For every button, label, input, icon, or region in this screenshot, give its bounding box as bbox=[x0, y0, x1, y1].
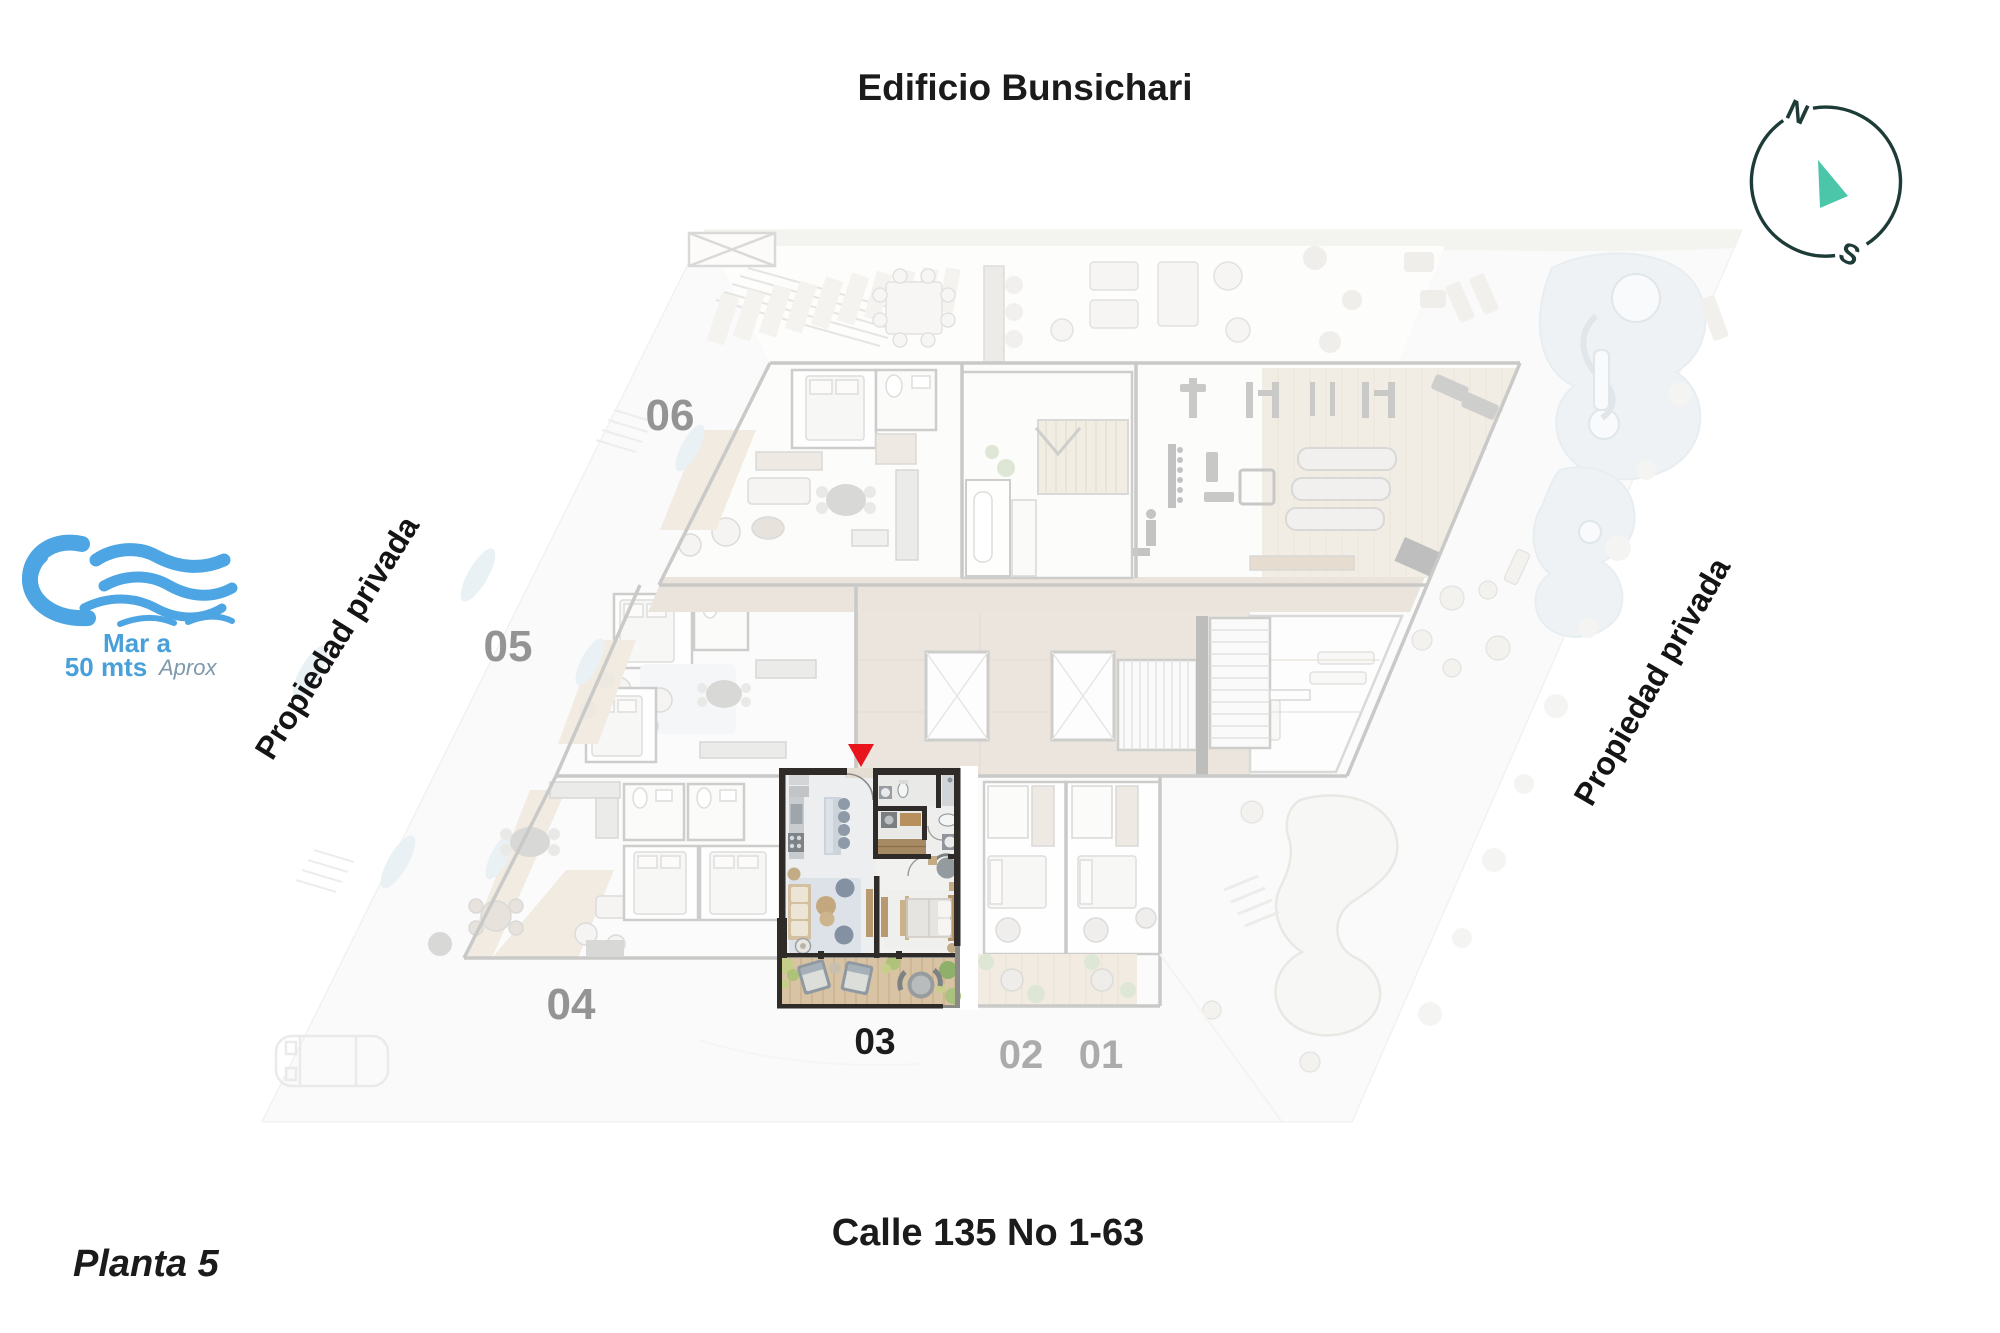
svg-text:50 mts: 50 mts bbox=[65, 652, 147, 682]
svg-text:Aprox: Aprox bbox=[157, 655, 217, 680]
svg-text:06: 06 bbox=[646, 391, 695, 440]
svg-text:Calle 135 No 1-63: Calle 135 No 1-63 bbox=[832, 1212, 1145, 1254]
svg-text:05: 05 bbox=[484, 622, 533, 671]
svg-text:01: 01 bbox=[1079, 1033, 1124, 1077]
svg-text:02: 02 bbox=[999, 1033, 1044, 1077]
svg-text:Edificio Bunsichari: Edificio Bunsichari bbox=[857, 67, 1192, 108]
svg-text:Planta 5: Planta 5 bbox=[73, 1243, 220, 1285]
svg-text:03: 03 bbox=[854, 1021, 895, 1062]
svg-text:04: 04 bbox=[547, 980, 596, 1029]
